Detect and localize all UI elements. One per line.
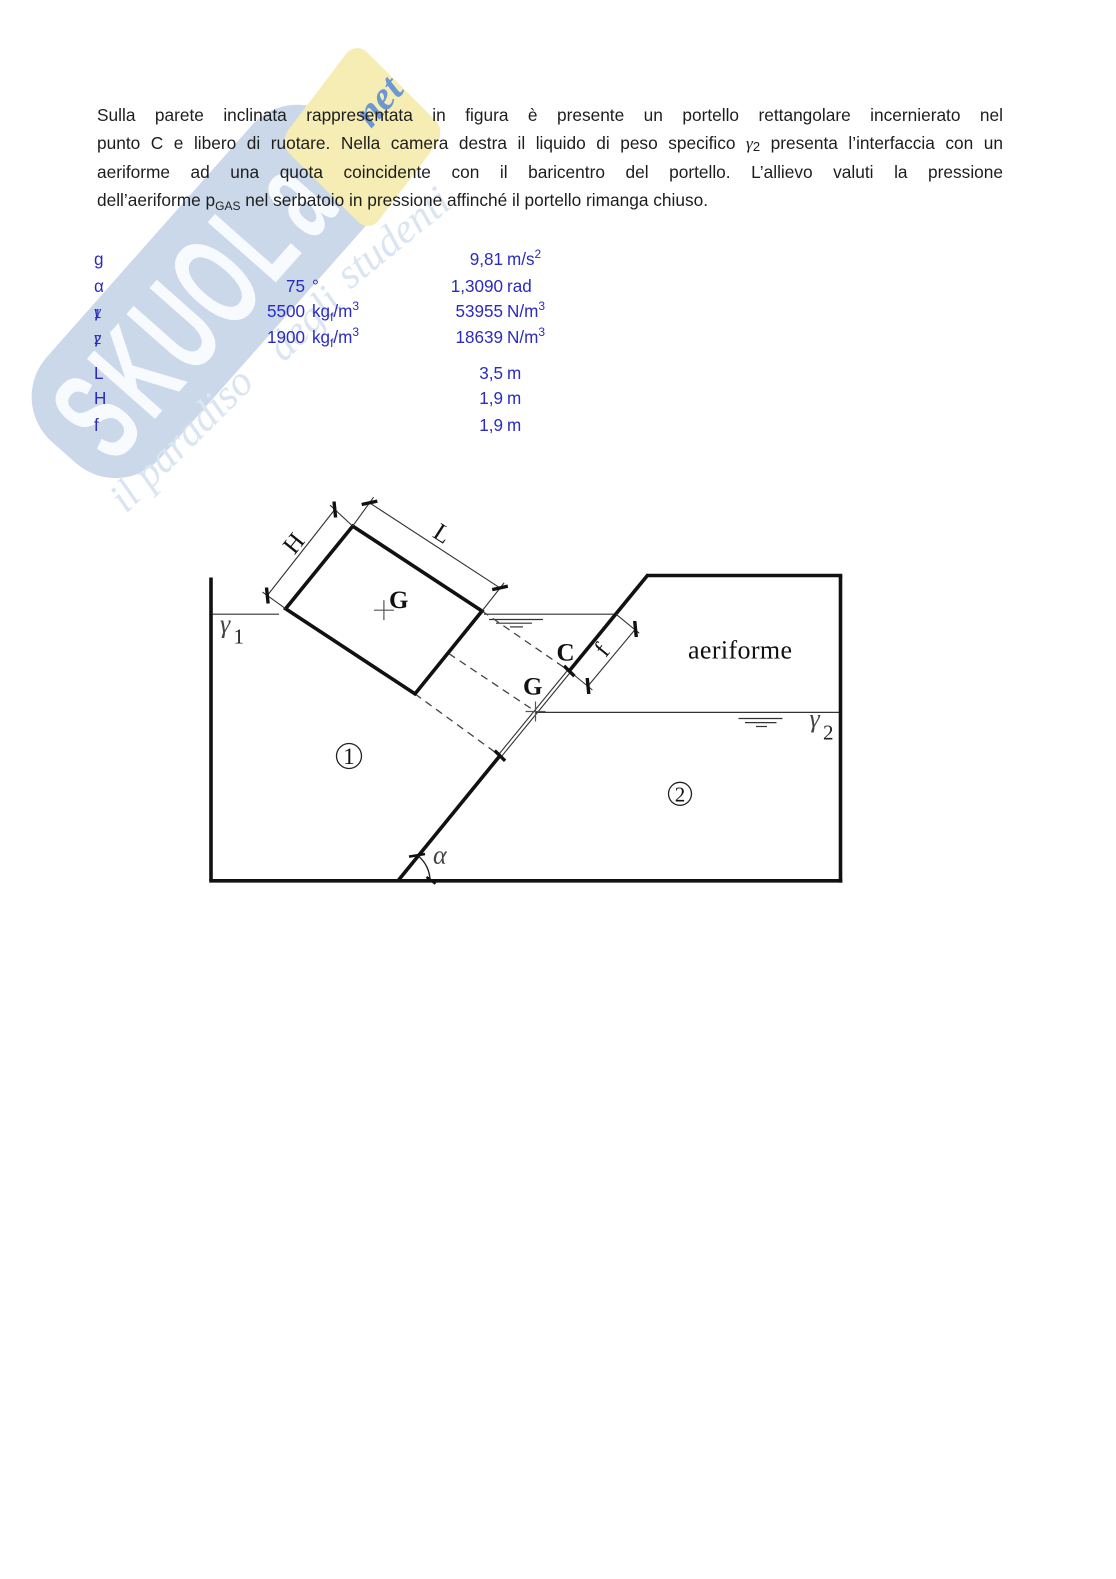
svg-text:γ: γ: [220, 610, 231, 639]
svg-text:f: f: [589, 638, 616, 662]
svg-text:1: 1: [343, 744, 355, 769]
svg-text:2: 2: [823, 721, 834, 745]
svg-text:1: 1: [234, 625, 245, 649]
svg-text:2: 2: [675, 783, 686, 807]
svg-text:α: α: [433, 841, 448, 870]
svg-text:γ: γ: [810, 704, 821, 733]
svg-text:aeriforme: aeriforme: [688, 636, 792, 665]
svg-text:H: H: [278, 528, 310, 559]
svg-text:L: L: [428, 519, 456, 550]
svg-text:G: G: [523, 674, 542, 701]
svg-text:C: C: [557, 640, 575, 667]
svg-text:G: G: [389, 587, 408, 614]
